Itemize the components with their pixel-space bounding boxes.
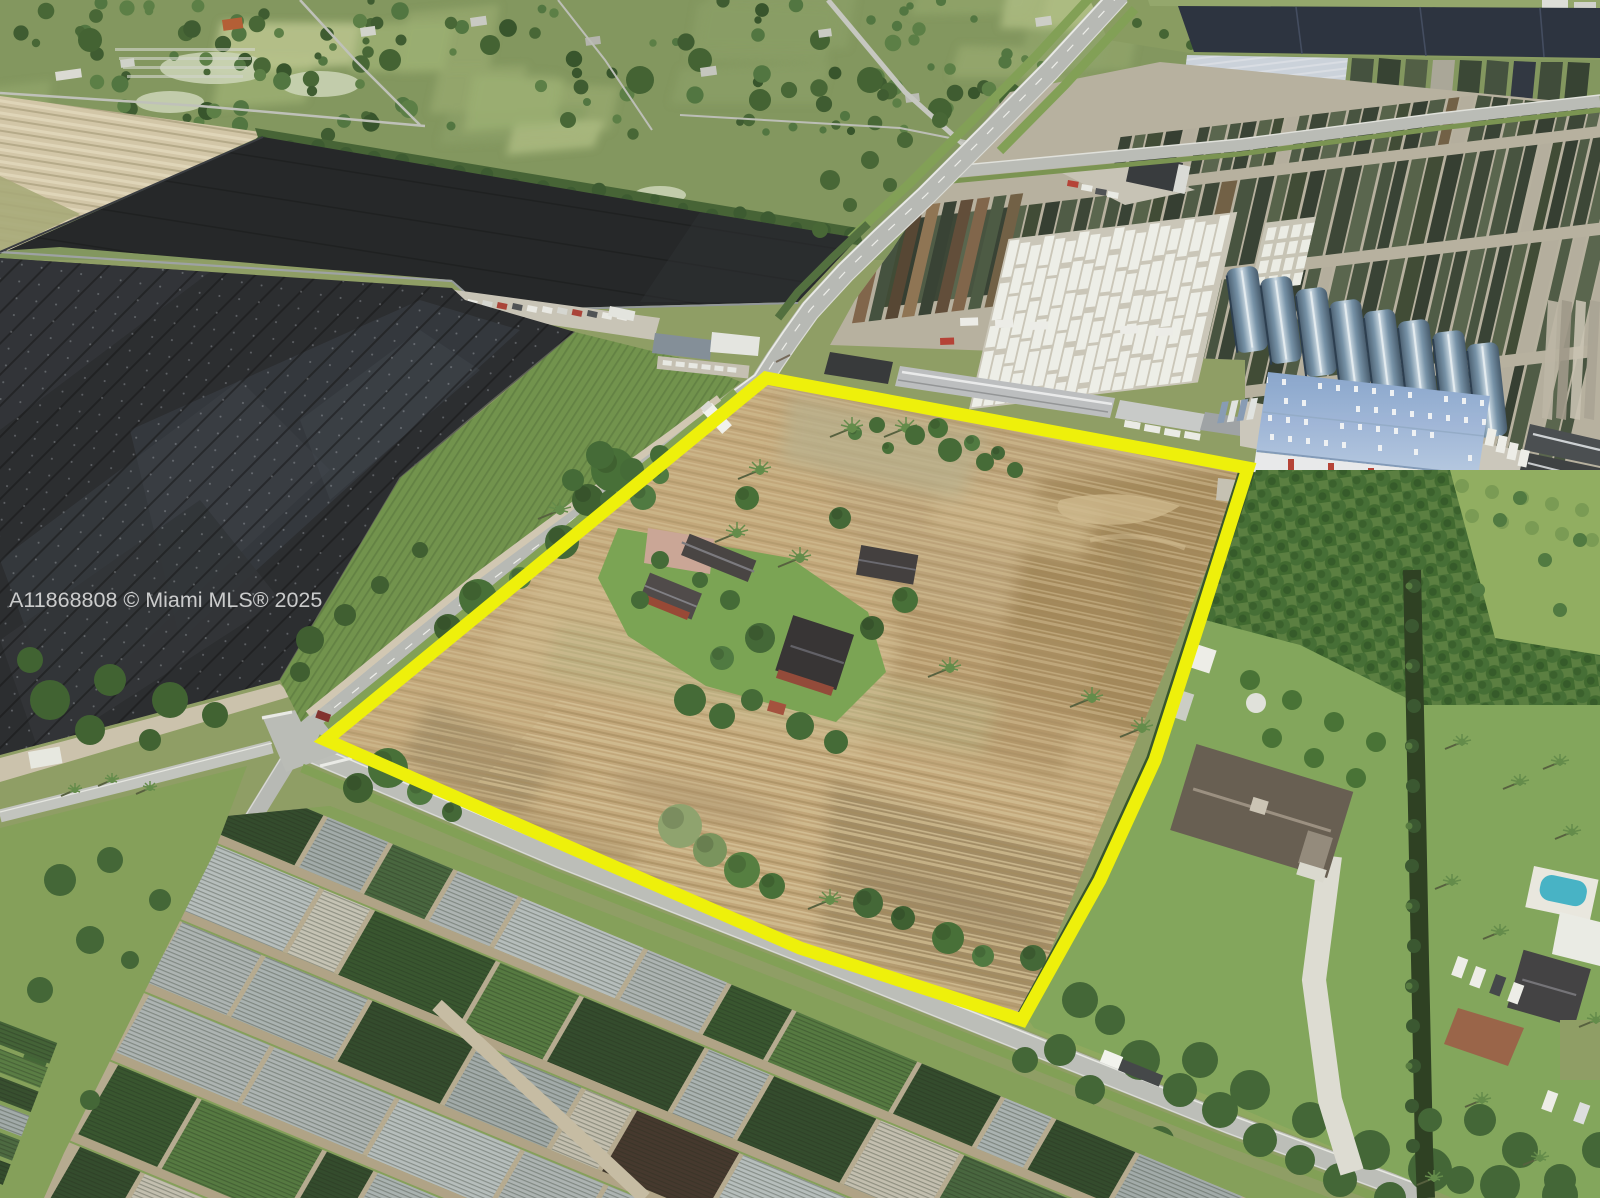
svg-text:A11868808 © Miami MLS® 2025: A11868808 © Miami MLS® 2025 — [9, 588, 322, 612]
